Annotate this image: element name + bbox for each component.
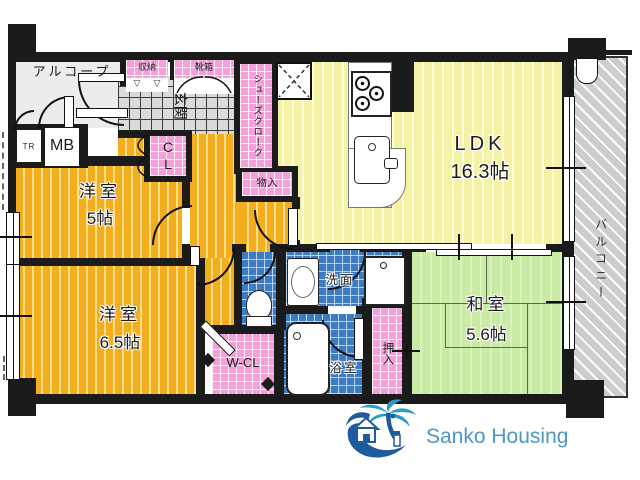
balcony-label: バルコニー (590, 168, 610, 352)
window-ldk-balcony (563, 96, 575, 242)
balcony-partition (576, 58, 598, 84)
toilet-tank (246, 316, 272, 327)
western65-size-label: 6.5帖 (50, 332, 190, 354)
japanese-size-label: 5.6帖 (424, 324, 549, 346)
sink-drain-icon (368, 143, 376, 151)
logo-coconut (391, 414, 396, 419)
floor-plan: ▽ ▽ アルコープ 収納 靴箱 玄関 シューズクローク TR MB CL 物入 … (0, 0, 640, 480)
meter-box-label: MB (45, 134, 79, 158)
western65-door-leaf (190, 246, 200, 266)
shoes-cloak-label: シューズクローク (246, 66, 266, 166)
pipe-space-box (276, 62, 312, 100)
sanko-housing-logo (342, 398, 424, 464)
ldk-size-label: 16.3帖 (400, 160, 560, 184)
monoire-label: 物入 (242, 176, 292, 192)
wall-top (8, 52, 572, 62)
wall-corner-bottom-right (566, 380, 604, 418)
sliding-door-mark (511, 234, 513, 260)
closet-label: CL (160, 138, 176, 174)
meter-box-door-leaf (64, 96, 74, 128)
room-japanese (412, 252, 562, 394)
window-center-mark (0, 236, 32, 238)
logo-brand-text: Sanko Housing (426, 422, 630, 452)
western5-size-label: 5帖 (40, 208, 160, 230)
logo-palm-frond (360, 405, 388, 413)
wcl-label: W-CL (214, 354, 272, 372)
wall-wcl-right (274, 334, 284, 394)
logo-house-roof (354, 418, 378, 429)
japanese-name-label: 和室 (430, 294, 545, 316)
logo-palm-frond (388, 414, 410, 427)
wall-rooms-divider (12, 258, 192, 266)
boundary-dashed-line (2, 132, 4, 210)
storage-top-label: 収納 (126, 61, 168, 75)
oshiire-label: 押入 (376, 326, 398, 380)
tatami-line (445, 347, 528, 348)
washroom-label: 洗面 (310, 272, 370, 290)
logo-palm-trunk (386, 413, 398, 439)
room-western-65 (16, 266, 196, 394)
western65-name-label: 洋室 (50, 304, 190, 326)
wall-balcony-top-line (600, 50, 632, 55)
ldk-name-label: LDK (410, 132, 550, 156)
trunk-room-label: TR (18, 140, 40, 154)
logo-swoosh-hook (346, 412, 370, 426)
kitchen-sink-tab (384, 158, 398, 169)
bathtub-drain-icon (293, 332, 301, 340)
window-japanese-balcony (563, 256, 575, 350)
wall-corner-bottom-left (8, 378, 36, 416)
logo-house-body (357, 428, 375, 442)
logo-palm-frond (368, 414, 388, 425)
tatami-line (527, 304, 528, 394)
wall-bath-top-a (284, 306, 328, 314)
wall-corner-top-right (568, 38, 606, 60)
window-western65 (6, 264, 20, 380)
window-western5 (6, 212, 20, 266)
bath-door-leaf (354, 318, 364, 360)
washing-machine-dot-icon (380, 262, 387, 269)
logo-house-door (363, 434, 370, 442)
wall-toilet-left (234, 250, 242, 328)
window-center-mark (546, 301, 586, 303)
entrance-label: 玄関 (158, 86, 202, 126)
stove-burner-icon (355, 76, 370, 91)
wall-bottom (8, 394, 572, 404)
alcove-label: アルコープ (20, 64, 124, 80)
stove-burner-icon (369, 86, 384, 101)
logo-lighthouse-top (394, 431, 400, 435)
logo-coconut (386, 413, 391, 418)
folding-door-icon: ▽ (128, 77, 146, 91)
logo-palm-frond (389, 408, 416, 415)
wall-toilet-right (276, 252, 286, 330)
logo-lighthouse-body (394, 435, 400, 446)
bathroom-label: 浴室 (318, 360, 370, 378)
wall-corner-top-left (8, 24, 36, 62)
western5-name-label: 洋室 (40, 182, 160, 202)
window-center-mark (0, 315, 32, 317)
ldk-door-leaf (288, 208, 298, 246)
sliding-door-panel (436, 249, 552, 256)
sliding-door-mark (458, 234, 460, 260)
fusuma-mark (406, 344, 408, 358)
boundary-dashed-line (3, 356, 5, 380)
shoe-box-label: 靴箱 (174, 61, 234, 75)
logo-swoosh-crescent (348, 423, 406, 458)
stove-burner-icon (355, 96, 370, 111)
entrance-step-sill (76, 108, 128, 118)
